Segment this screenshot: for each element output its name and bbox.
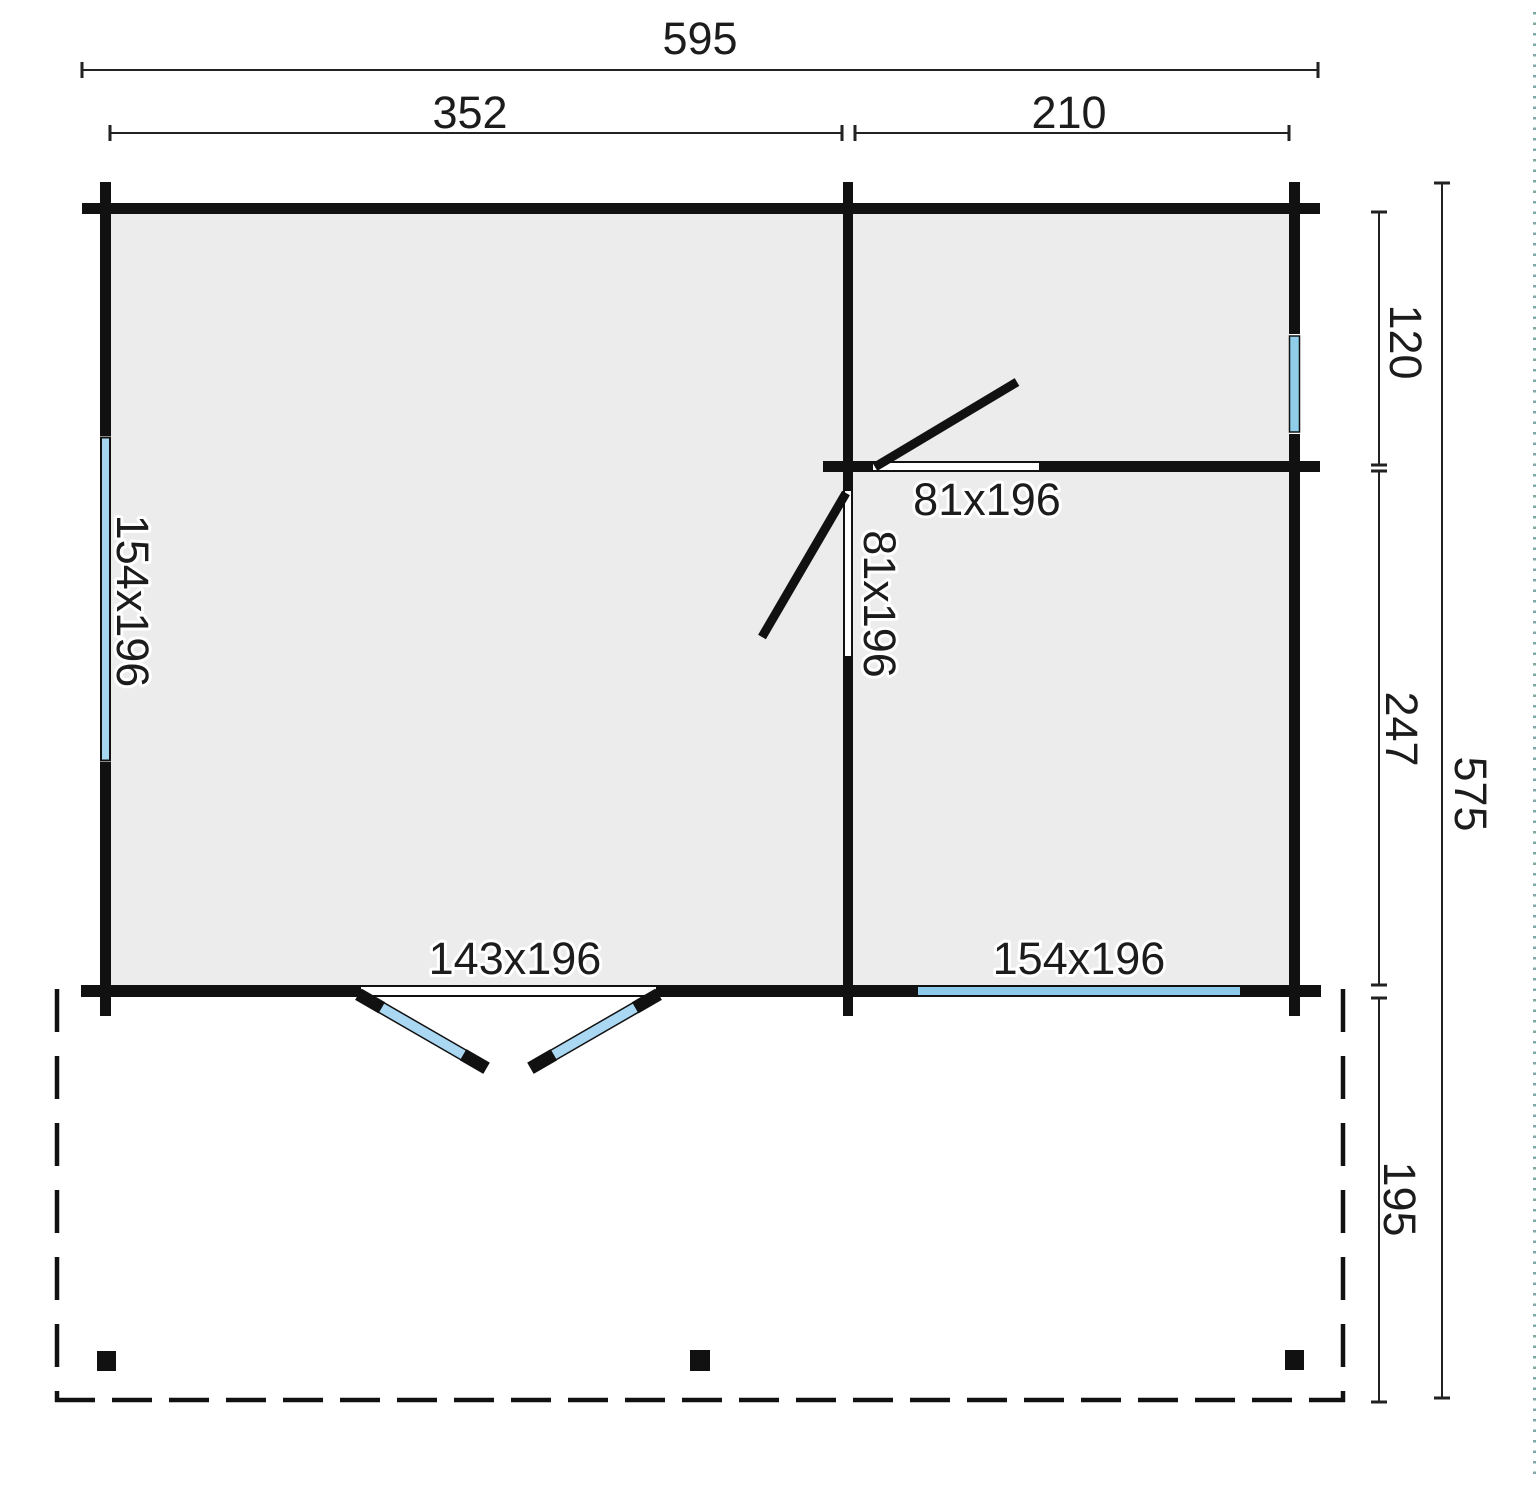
svg-text:143x196: 143x196: [429, 933, 602, 984]
svg-text:120: 120: [1380, 304, 1431, 379]
svg-text:81x196: 81x196: [854, 530, 905, 678]
svg-text:154x196: 154x196: [107, 515, 158, 688]
svg-text:595: 595: [662, 13, 737, 64]
svg-text:247: 247: [1376, 691, 1427, 766]
svg-text:154x196: 154x196: [993, 933, 1166, 984]
svg-text:352: 352: [432, 87, 507, 138]
svg-text:81x196: 81x196: [913, 474, 1061, 525]
svg-text:210: 210: [1031, 87, 1106, 138]
svg-text:195: 195: [1374, 1161, 1425, 1236]
svg-text:575: 575: [1445, 756, 1496, 831]
